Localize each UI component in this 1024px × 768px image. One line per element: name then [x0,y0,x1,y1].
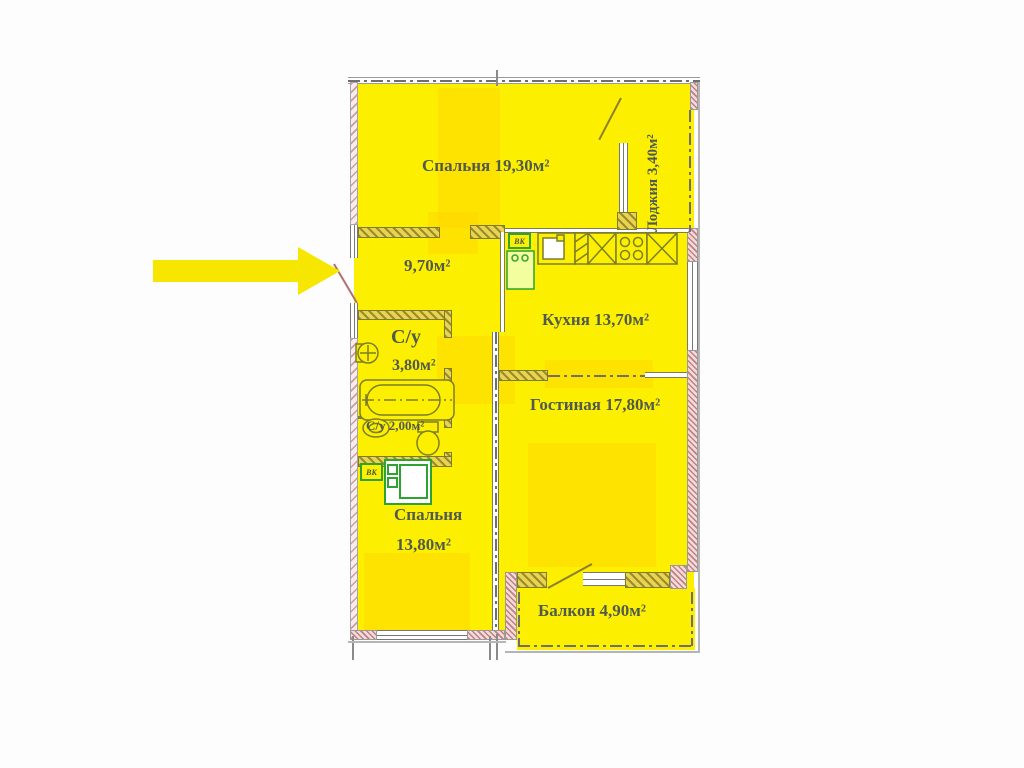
wall-top [348,77,700,84]
bathroom-fixtures [356,336,458,424]
kitchen-units [505,230,687,292]
floor-plan-page: Спальня 19,30м² Лоджия 3,40м² 9,70м² Кух… [0,0,1024,768]
wall-right-living [687,350,698,572]
room-label-hallway: 9,70м² [404,257,450,276]
loggia-window [619,143,628,215]
room-label-living: Гостиная 17,80м² [530,396,660,415]
outer-contour-bottom [505,651,700,653]
vent-marker-bathroom: ВК [360,463,383,481]
outer-contour-right [698,82,700,652]
wall-bathroom-right-a [444,310,452,338]
wall-bedroom-living [492,332,499,630]
balcony-wall-window [583,572,625,586]
shading-bedroom-bottom [364,553,470,631]
washing-machine-icon [383,458,435,508]
axis-tick-bottom-left [352,636,354,660]
stove-icon [616,233,647,264]
wall-balcony-left [505,572,517,640]
axis-kitchen-living [548,375,645,377]
wall-kitchen-living-a [499,370,548,381]
loggia-glazing [689,110,691,232]
kitchen-window [687,262,698,350]
wall-living-balcony-a [517,572,547,588]
room-label-balcony: Балкон 4,90м² [538,602,646,621]
balcony-outline-bottom [518,645,694,647]
room-label-bathroom-name: С/у [391,326,421,348]
wall-right-loggia [690,82,698,110]
wall-living-balcony-b [625,572,670,588]
entrance-arrow [153,260,298,282]
entrance-jamb-top [350,225,358,258]
wall-bottom-left [350,630,377,640]
wall-kitchen-living-b [645,372,687,378]
room-label-loggia: Лоджия 3,40м² [645,108,662,232]
entrance-arrow-head [298,247,340,295]
entrance-jamb-bottom [350,303,358,338]
room-label-bathroom-area: 3,80м² [392,357,436,375]
room-label-bedroom-bottom-name: Спальня [394,506,462,525]
room-label-kitchen: Кухня 13,70м² [542,311,649,330]
pillar-loggia [617,212,637,230]
room-label-toilet: С/у 2,00м² [366,419,424,433]
bedroom-bottom-window [377,630,467,640]
balcony-outline-left [518,592,520,645]
axis-tick-bottom [496,634,498,660]
shading-kitchen [545,360,653,388]
wall-right-kitchen [687,228,698,262]
room-label-bedroom-bottom-area: 13,80м² [396,536,451,555]
wall-bedroomtop-hall [358,227,440,238]
wall-bottom-mid [467,630,505,640]
vent-marker-kitchen: ВК [508,233,531,249]
outer-contour-bottom-left [348,641,506,643]
wall-corner-balcony [670,565,687,589]
room-label-bedroom-top: Спальня 19,30м² [422,157,549,176]
axis-tick-top [496,70,498,86]
wall-left-upper [350,82,358,225]
axis-tick-bottom-mid [489,636,491,660]
shading-living [528,443,656,567]
balcony-outline-right [691,592,693,646]
fridge-icon [507,251,534,289]
wall-bathroom-top [358,310,452,320]
toilet-bowl-icon [417,431,439,455]
